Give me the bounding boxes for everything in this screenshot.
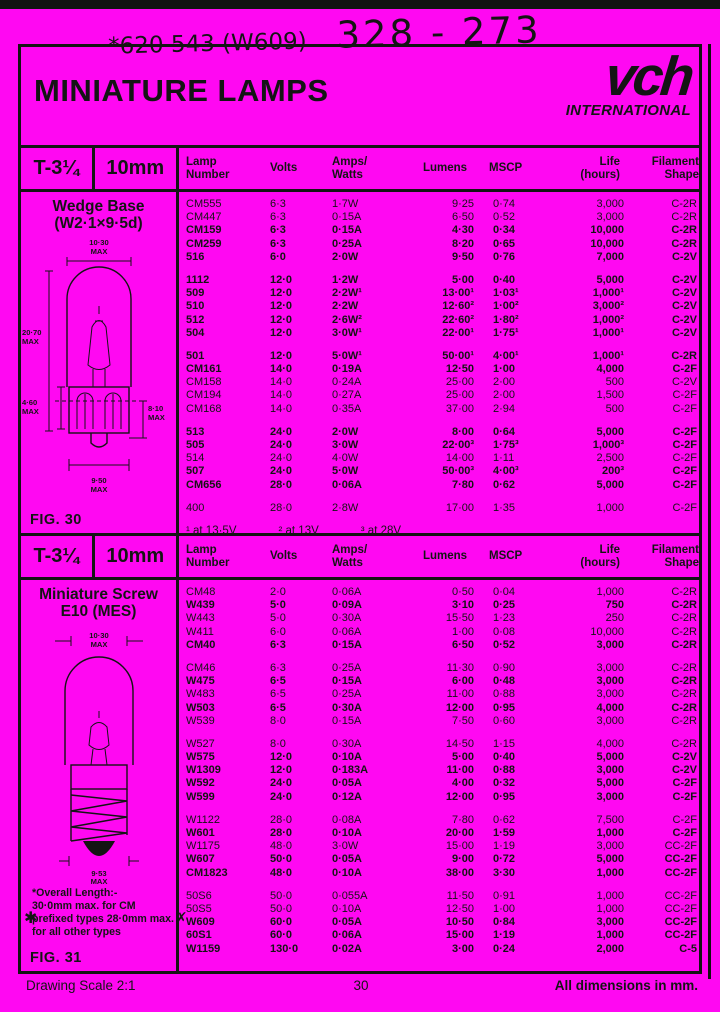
cell-value: 0·60 — [480, 715, 542, 728]
table-row: 50912·02·2W¹13·00¹1·03¹1,000¹C-2V — [186, 287, 699, 300]
cell-value: 24·0 — [270, 465, 332, 478]
cell-value: 28·0 — [270, 479, 332, 492]
column-header: Lamp Number — [186, 544, 270, 570]
lamp-number: 504 — [186, 327, 270, 340]
lamp-number: W439 — [186, 599, 270, 612]
table-row: CM65628·00·06A7·800·625,000C-2F — [186, 479, 699, 492]
cell-value: 2·2W¹ — [332, 287, 410, 300]
table-row: 51324·02·0W8·000·645,000C-2F — [186, 426, 699, 439]
cell-value: 0·62 — [480, 479, 542, 492]
table-row: 51012·02·2W12·60²1·00²3,000²C-2V — [186, 300, 699, 313]
cell-value: 0·10A — [332, 751, 410, 764]
cell-value: 11·00 — [410, 764, 480, 777]
table-row: W4116·00·06A1·000·0810,000C-2R — [186, 626, 699, 639]
cell-value: 0·27A — [332, 389, 410, 402]
table2-body: Miniature Screw E10 (MES) 10·30 MAX 9·53 — [21, 580, 699, 971]
lamp-number: CM194 — [186, 389, 270, 402]
cell-value: 2·8W — [332, 502, 410, 515]
cell-value: 8·0 — [270, 715, 332, 728]
lamp-number: CM46 — [186, 662, 270, 675]
cell-value: C-2R — [628, 688, 699, 701]
cell-value: 3·0W¹ — [332, 327, 410, 340]
cell-value: 1·75¹ — [480, 327, 542, 340]
table-row: CM182348·00·10A38·003·301,000CC-2F — [186, 867, 699, 880]
cell-value: 2,500 — [542, 452, 628, 465]
base-type-line2: (W2·1×9·5d) — [21, 215, 176, 232]
cell-value: 6·3 — [270, 211, 332, 224]
handwritten-star-mark: ✱ — [24, 908, 37, 927]
table1-header-band: T-3¼ 10mm Lamp Number Volts Amps/ Watts … — [21, 145, 699, 192]
cell-value: 4·30 — [410, 224, 480, 237]
dim-bottom-value: 9·50 — [91, 476, 106, 485]
cell-value: 1·2W — [332, 274, 410, 287]
cell-value: C-2R — [628, 238, 699, 251]
cell-value: 1,000 — [542, 867, 628, 880]
cell-value: 6·0 — [270, 251, 332, 264]
lamp-diameter-label: 10mm — [95, 536, 179, 577]
cell-value: 0·10A — [332, 827, 410, 840]
lamp-number: 512 — [186, 314, 270, 327]
cell-value: 0·04 — [480, 586, 542, 599]
brand-logo: vch INTERNATIONAL — [566, 53, 691, 119]
table-row: 5166·02·0W9·500·767,000C-2V — [186, 251, 699, 264]
cell-value: 24·0 — [270, 777, 332, 790]
lamp-number: CM48 — [186, 586, 270, 599]
cell-value: C-2R — [628, 612, 699, 625]
cell-value: 3,000 — [542, 211, 628, 224]
cell-value: 38·00 — [410, 867, 480, 880]
cell-value: 0·05A — [332, 853, 410, 866]
cell-value: 7,500 — [542, 814, 628, 827]
cell-value: 11·00 — [410, 688, 480, 701]
lamp-number: CM40 — [186, 639, 270, 652]
lamp-number: CM161 — [186, 363, 270, 376]
cell-value: 7·80 — [410, 814, 480, 827]
cell-value: 3,000 — [542, 840, 628, 853]
cell-value: 0·15A — [332, 639, 410, 652]
table-row: W60960·00·05A10·500·843,000CC-2F✗ — [186, 916, 699, 929]
table-row: W5036·50·30A12·000·954,000C-2R — [186, 702, 699, 715]
cell-value: 0·34 — [480, 224, 542, 237]
cell-value: 22·00¹ — [410, 327, 480, 340]
cell-value: 6·50 — [410, 639, 480, 652]
cell-value: 5,000 — [542, 853, 628, 866]
cell-value: 11·30 — [410, 662, 480, 675]
lamp-size-label: T-3¼ — [21, 148, 95, 189]
lamp-number: 516 — [186, 251, 270, 264]
cell-value: C-2R — [628, 715, 699, 728]
column-header: MSCP — [480, 550, 542, 563]
dim-left-value: 20·70 — [22, 328, 41, 337]
column-header: Amps/ Watts — [332, 156, 410, 182]
cell-value: 22·00³ — [410, 439, 480, 452]
cell-value: 9·00 — [410, 853, 480, 866]
table-row: 60S160·00·06A15·001·191,000CC-2F — [186, 929, 699, 942]
table-row: W117548·03·0W15·001·193,000CC-2F — [186, 840, 699, 853]
lamp-number: 514 — [186, 452, 270, 465]
cell-value: 14·00 — [410, 452, 480, 465]
cell-value: 28·0 — [270, 827, 332, 840]
cell-value: 0·25 — [480, 599, 542, 612]
cell-value: 12·00 — [410, 702, 480, 715]
cell-value: 6·5 — [270, 702, 332, 715]
dim-right-unit: MAX — [148, 413, 165, 422]
cell-value: 0·91 — [480, 890, 542, 903]
cell-value: 1·19 — [480, 840, 542, 853]
cell-value: 5·0W¹ — [332, 350, 410, 363]
lamp-number: W575 — [186, 751, 270, 764]
cell-value: 50·00¹ — [410, 350, 480, 363]
cell-value: C-2F — [628, 777, 699, 790]
cell-value: 10,000 — [542, 626, 628, 639]
table-row: CM4476·30·15A6·500·523,000C-2R — [186, 211, 699, 224]
cell-value: 0·08 — [480, 626, 542, 639]
cell-value: 1·35 — [480, 502, 542, 515]
table-row: 50S650·00·055A11·500·911,000CC-2F — [186, 890, 699, 903]
lamp-number: CM158 — [186, 376, 270, 389]
cell-value: 28·0 — [270, 814, 332, 827]
cell-value: C-2R — [628, 662, 699, 675]
cell-value: CC-2F — [628, 840, 699, 853]
cell-value: 6·5 — [270, 675, 332, 688]
cell-value: 0·95 — [480, 791, 542, 804]
cell-value: C-2V — [628, 251, 699, 264]
lamp-number: CM656 — [186, 479, 270, 492]
table-row: W5278·00·30A14·501·154,000C-2R — [186, 738, 699, 751]
table-row: W4395·00·09A3·100·25750C-2R — [186, 599, 699, 612]
cell-value: 15·50 — [410, 612, 480, 625]
cell-value: 1·11 — [480, 452, 542, 465]
table-row: 51212·02·6W²22·60²1·80²1,000²C-2V — [186, 314, 699, 327]
cell-value: 2,000 — [542, 943, 628, 956]
cell-value: 0·30A — [332, 738, 410, 751]
lamp-number: W503 — [186, 702, 270, 715]
table-row: W4756·50·15A6·000·483,000C-2R — [186, 675, 699, 688]
cell-value: 0·40 — [480, 274, 542, 287]
table-row: CM406·30·15A6·500·523,000C-2R — [186, 639, 699, 652]
cell-value: C-2R — [628, 586, 699, 599]
row-group: CM482·00·06A0·500·041,000C-2RW4395·00·09… — [186, 586, 699, 652]
cell-value: 1·80² — [480, 314, 542, 327]
lamp-number: W592 — [186, 777, 270, 790]
wedge-lamp-drawing: 10·30 MAX 20·70 MAX 4·60 MAX — [21, 235, 176, 503]
cell-value: 2·94 — [480, 403, 542, 416]
lamp-number: 60S1 — [186, 929, 270, 942]
cell-value: 0·64 — [480, 426, 542, 439]
dim-top-value: 10·30 — [89, 631, 108, 640]
cell-value: 12·0 — [270, 274, 332, 287]
cell-value: CC-2F — [628, 853, 699, 866]
cell-value: C-2V — [628, 314, 699, 327]
cell-value: 1,000 — [542, 890, 628, 903]
cell-value: 5·00 — [410, 751, 480, 764]
lamp-number: W483 — [186, 688, 270, 701]
dimensions-note: All dimensions in mm. — [555, 978, 698, 993]
cell-value: 2·2W — [332, 300, 410, 313]
cell-value: 3,000 — [542, 688, 628, 701]
cell-value: 1·75³ — [480, 439, 542, 452]
dim-bottom-unit: MAX — [91, 877, 108, 885]
cell-value: 4,000 — [542, 738, 628, 751]
lamp-number: 50S6 — [186, 890, 270, 903]
cell-value: 1,000 — [542, 502, 628, 515]
cell-value: 8·20 — [410, 238, 480, 251]
lamp-number: 513 — [186, 426, 270, 439]
column-header: Lumens — [410, 162, 480, 175]
cell-value: 1,000¹ — [542, 350, 628, 363]
table2-column-headers: Lamp Number Volts Amps/ Watts Lumens MSC… — [179, 536, 699, 577]
cell-value: 60·0 — [270, 916, 332, 929]
table-row: CM466·30·25A11·300·903,000C-2R — [186, 662, 699, 675]
cell-value: 1·00 — [480, 903, 542, 916]
cell-value: 12·60² — [410, 300, 480, 313]
table1-footnotes: ¹ at 13·5V ² at 13V ³ at 28V — [186, 525, 699, 537]
base-type-line1: Miniature Screw — [21, 586, 176, 603]
table-row: 50524·03·0W22·00³1·75³1,000³C-2F — [186, 439, 699, 452]
column-header: MSCP — [480, 162, 542, 175]
cell-value: 17·00 — [410, 502, 480, 515]
cell-value: 3,000 — [542, 662, 628, 675]
cell-value: 3,000 — [542, 198, 628, 211]
base-type-line2: E10 (MES) — [21, 603, 176, 620]
cell-value: 7·50 — [410, 715, 480, 728]
figure-label: FIG. 30 — [30, 512, 82, 528]
column-header: Volts — [270, 162, 332, 175]
cell-value: 6·3 — [270, 224, 332, 237]
cell-value: 24·0 — [270, 439, 332, 452]
cell-value: 0·08A — [332, 814, 410, 827]
column-header: Amps/ Watts — [332, 544, 410, 570]
lamp-number: W609 — [186, 916, 270, 929]
table-row: CM16814·00·35A37·002·94500C-2F — [186, 403, 699, 416]
dim-mid-value: 4·60 — [22, 398, 37, 407]
cell-value: 1,000 — [542, 903, 628, 916]
lamp-number: 1112 — [186, 274, 270, 287]
lamp-number: CM447 — [186, 211, 270, 224]
cell-value: CC-2F — [628, 890, 699, 903]
cell-value: 0·88 — [480, 688, 542, 701]
cell-value: C-2V — [628, 376, 699, 389]
cell-value: 0·48 — [480, 675, 542, 688]
cell-value: 4,000 — [542, 363, 628, 376]
cell-value: CC-2F — [628, 916, 699, 929]
cell-value: 0·15A — [332, 675, 410, 688]
cell-value: 25·00 — [410, 389, 480, 402]
cell-value: 6·5 — [270, 688, 332, 701]
cell-value: 1·23 — [480, 612, 542, 625]
cell-value: 0·50 — [410, 586, 480, 599]
cell-value: 3,000 — [542, 916, 628, 929]
cell-value: 12·0 — [270, 350, 332, 363]
cell-value: 24·0 — [270, 452, 332, 465]
table1-body: Wedge Base (W2·1×9·5d) 10·30 MAX — [21, 192, 699, 533]
logo-wordmark: vch — [563, 53, 693, 100]
cell-value: 20·00 — [410, 827, 480, 840]
scan-artifact-top — [0, 0, 720, 9]
cell-value: 50·0 — [270, 853, 332, 866]
cell-value: 7,000 — [542, 251, 628, 264]
cell-value: 500 — [542, 403, 628, 416]
cell-value: 14·0 — [270, 389, 332, 402]
cell-value: CC-2F — [628, 929, 699, 942]
cell-value: 0·40 — [480, 751, 542, 764]
cell-value: 14·0 — [270, 376, 332, 389]
cell-value: 0·76 — [480, 251, 542, 264]
cell-value: 5·0W — [332, 465, 410, 478]
base-type-line1: Wedge Base — [21, 198, 176, 215]
base-type-heading: Miniature Screw E10 (MES) — [21, 586, 176, 621]
cell-value: 15·00 — [410, 840, 480, 853]
cell-value: 24·0 — [270, 791, 332, 804]
page-number: 30 — [353, 978, 368, 993]
cell-value: C-2F — [628, 827, 699, 840]
cell-value: 14·50 — [410, 738, 480, 751]
lamp-size-label: T-3¼ — [21, 536, 95, 577]
cell-value: 0·06A — [332, 479, 410, 492]
cell-value: 25·00 — [410, 376, 480, 389]
table-row: 50724·05·0W50·00³4·00³200³C-2F — [186, 465, 699, 478]
cell-value: 5,000 — [542, 777, 628, 790]
lamp-number: 400 — [186, 502, 270, 515]
cell-value: C-2F — [628, 363, 699, 376]
table1-data: CM5556·31·7W9·250·743,000C-2RCM4476·30·1… — [179, 192, 699, 533]
table1-column-headers: Lamp Number Volts Amps/ Watts Lumens MSC… — [179, 148, 699, 189]
cell-value: 4,000 — [542, 702, 628, 715]
cell-value: 5,000 — [542, 426, 628, 439]
table-row: W130912·00·183A11·000·883,000C-2V — [186, 764, 699, 777]
cell-value: C-2V — [628, 274, 699, 287]
cell-value: 1·15 — [480, 738, 542, 751]
cell-value: 22·60² — [410, 314, 480, 327]
lamp-number: W475 — [186, 675, 270, 688]
cell-value: 8·00 — [410, 426, 480, 439]
table-row: W59924·00·12A12·000·953,000C-2F — [186, 791, 699, 804]
row-group: CM5556·31·7W9·250·743,000C-2RCM4476·30·1… — [186, 198, 699, 264]
table-row: W4435·00·30A15·501·23250C-2R — [186, 612, 699, 625]
table2-data: CM482·00·06A0·500·041,000C-2RW4395·00·09… — [179, 580, 699, 971]
table-row: 50112·05·0W¹50·00¹4·00¹1,000¹C-2R — [186, 350, 699, 363]
column-header: Filament Shape — [628, 156, 699, 182]
scan-artifact-right — [708, 44, 711, 979]
cell-value: 0·06A — [332, 929, 410, 942]
cell-value: 1,000¹ — [542, 287, 628, 300]
cell-value: CC-2F — [628, 867, 699, 880]
cell-value: C-2V — [628, 300, 699, 313]
column-header: Life (hours) — [542, 544, 628, 570]
cell-value: 50·0 — [270, 903, 332, 916]
cell-value: 1·59 — [480, 827, 542, 840]
cell-value: 3,000 — [542, 675, 628, 688]
lamp-number: 509 — [186, 287, 270, 300]
cell-value: 0·25A — [332, 688, 410, 701]
screw-lamp-drawing: 10·30 MAX 9·53 MAX — [21, 623, 176, 885]
page-header: MINIATURE LAMPS vch INTERNATIONAL — [21, 47, 699, 145]
overall-length-note: *Overall Length:- 30·0mm max. for CM pre… — [32, 887, 174, 939]
cell-value: 12·50 — [410, 903, 480, 916]
cell-value: 200³ — [542, 465, 628, 478]
cell-value: 12·0 — [270, 751, 332, 764]
lamp-number: W607 — [186, 853, 270, 866]
cell-value: 750 — [542, 599, 628, 612]
cell-value: 2·00 — [480, 389, 542, 402]
cell-value: 3·30 — [480, 867, 542, 880]
dim-mid-unit: MAX — [22, 407, 39, 416]
cell-value: 2·00 — [480, 376, 542, 389]
cell-value: 1,500 — [542, 389, 628, 402]
cell-value: 0·35A — [332, 403, 410, 416]
table-row: W112228·00·08A7·800·627,500C-2F — [186, 814, 699, 827]
cell-value: 0·02A — [332, 943, 410, 956]
page-frame: MINIATURE LAMPS vch INTERNATIONAL T-3¼ 1… — [18, 44, 702, 974]
dim-top-unit: MAX — [91, 640, 108, 649]
row-group: W112228·00·08A7·800·627,500C-2FW60128·00… — [186, 814, 699, 880]
cell-value: 12·0 — [270, 300, 332, 313]
column-header: Lumens — [410, 550, 480, 563]
cell-value: C-2F — [628, 479, 699, 492]
cell-value: CC-2F — [628, 903, 699, 916]
cell-value: 6·3 — [270, 238, 332, 251]
cell-value: 6·0 — [270, 626, 332, 639]
cell-value: 11·50 — [410, 890, 480, 903]
cell-value: 3,000 — [542, 764, 628, 777]
cell-value: 48·0 — [270, 867, 332, 880]
table-row: 50S550·00·10A12·501·001,000CC-2F — [186, 903, 699, 916]
lamp-number: CM1823 — [186, 867, 270, 880]
cell-value: 15·00 — [410, 929, 480, 942]
cell-value: 9·50 — [410, 251, 480, 264]
cell-value: 2·6W² — [332, 314, 410, 327]
cell-value: C-2V — [628, 327, 699, 340]
lamp-number: 505 — [186, 439, 270, 452]
cell-value: 5,000 — [542, 751, 628, 764]
cell-value: 1,000 — [542, 586, 628, 599]
cell-value: 0·72 — [480, 853, 542, 866]
cell-value: 50·00³ — [410, 465, 480, 478]
cell-value: 24·0 — [270, 426, 332, 439]
cell-value: C-2F — [628, 426, 699, 439]
table-row: W60750·00·05A9·000·725,000CC-2F — [186, 853, 699, 866]
cell-value: 1,000¹ — [542, 327, 628, 340]
cell-value: 5,000 — [542, 274, 628, 287]
cell-value: 12·0 — [270, 287, 332, 300]
table-row: W5398·00·15A7·500·603,000C-2R — [186, 715, 699, 728]
dim-bottom-unit: MAX — [91, 485, 108, 494]
cell-value: 2·0W — [332, 426, 410, 439]
cell-value: 4·00¹ — [480, 350, 542, 363]
cell-value: 48·0 — [270, 840, 332, 853]
cell-value: 3·0W — [332, 439, 410, 452]
footnote-3: ³ at 28V — [361, 525, 401, 537]
cell-value: C-2F — [628, 791, 699, 804]
lamp-number: 501 — [186, 350, 270, 363]
cell-value: 0·30A — [332, 702, 410, 715]
cell-value: 3·0W — [332, 840, 410, 853]
table-row: CM482·00·06A0·500·041,000C-2R — [186, 586, 699, 599]
cell-value: C-2R — [628, 198, 699, 211]
table-row: CM1596·30·15A4·300·3410,000C-2R — [186, 224, 699, 237]
lamp-number: 50S5 — [186, 903, 270, 916]
screw-base-panel: Miniature Screw E10 (MES) 10·30 MAX 9·53 — [21, 580, 179, 971]
cell-value: 7·80 — [410, 479, 480, 492]
table-row: CM5556·31·7W9·250·743,000C-2R — [186, 198, 699, 211]
cell-value: 0·52 — [480, 639, 542, 652]
lamp-number: W443 — [186, 612, 270, 625]
lamp-number: CM555 — [186, 198, 270, 211]
table-row: 51424·04·0W14·001·112,500C-2F — [186, 452, 699, 465]
cell-value: 0·25A — [332, 662, 410, 675]
lamp-number: W1122 — [186, 814, 270, 827]
table1-rows: CM5556·31·7W9·250·743,000C-2RCM4476·30·1… — [186, 198, 699, 515]
